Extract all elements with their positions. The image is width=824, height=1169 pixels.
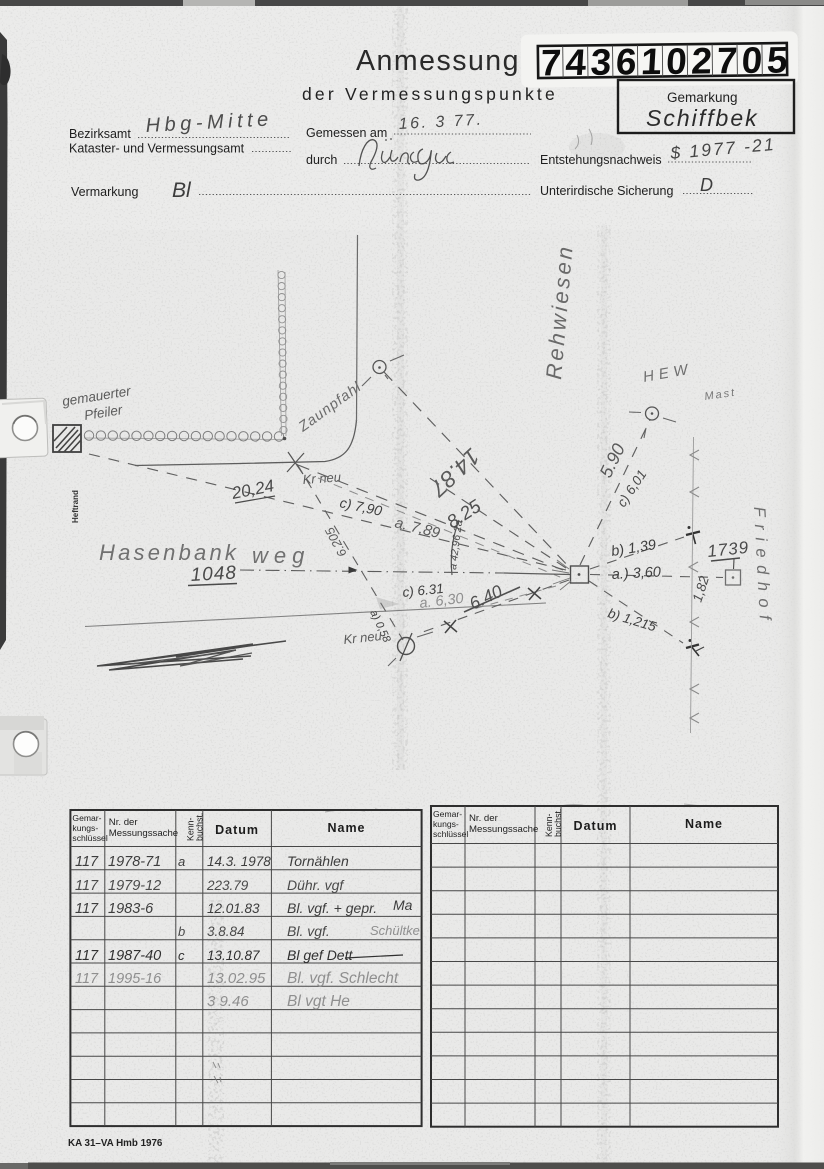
svg-text:schlüssel: schlüssel: [72, 833, 107, 843]
svg-text:117: 117: [75, 878, 99, 894]
svg-text:Ma: Ma: [393, 897, 413, 913]
svg-text:der Vermessungspunkte: der Vermessungspunkte: [302, 84, 558, 104]
svg-text:1978-71: 1978-71: [108, 854, 161, 870]
svg-text:b: b: [178, 924, 185, 939]
svg-text:1048: 1048: [190, 563, 237, 586]
svg-text:a.) 3,60: a.) 3,60: [611, 564, 661, 583]
svg-text:7436102705: 7436102705: [539, 38, 793, 83]
svg-text:Unterirdische Sicherung: Unterirdische Sicherung: [540, 184, 673, 198]
svg-text:3 9.46: 3 9.46: [207, 993, 249, 1010]
svg-text:schlüssel: schlüssel: [433, 829, 468, 839]
svg-text:Schültke: Schültke: [370, 923, 420, 938]
svg-text:117: 117: [75, 948, 99, 964]
svg-text:117: 117: [75, 854, 99, 870]
svg-text:Bl. vgf.: Bl. vgf.: [287, 923, 330, 939]
svg-text:Hasenbank: Hasenbank: [99, 540, 239, 565]
svg-text:a: a: [178, 854, 185, 869]
svg-text:Bezirksamt: Bezirksamt: [69, 127, 131, 141]
svg-text:Datum: Datum: [215, 823, 259, 837]
svg-text:14.3. 1978: 14.3. 1978: [207, 854, 271, 869]
svg-text:Kataster- und Vermessungsamt: Kataster- und Vermessungsamt: [69, 142, 245, 156]
svg-text:c: c: [178, 948, 185, 963]
svg-text:Kr neu: Kr neu: [302, 469, 341, 487]
svg-text:Messungssache: Messungssache: [469, 824, 538, 835]
svg-text:D: D: [700, 175, 713, 195]
svg-text:Gemessen am: Gemessen am: [306, 126, 387, 140]
svg-text:Vermarkung: Vermarkung: [71, 185, 138, 199]
svg-text:Anmessung: Anmessung: [356, 45, 520, 77]
svg-text:Bl. vgf. + gepr.: Bl. vgf. + gepr.: [287, 900, 377, 916]
svg-text:Schiffbek: Schiffbek: [646, 105, 759, 131]
svg-text:durch: durch: [306, 153, 337, 167]
svg-text:Nr. der: Nr. der: [469, 813, 499, 824]
svg-text:Heftrand: Heftrand: [71, 490, 80, 523]
svg-text:buchst.: buchst.: [194, 813, 204, 841]
svg-text:Nr. der: Nr. der: [109, 817, 139, 828]
svg-text:Name: Name: [685, 817, 723, 831]
svg-text:buchst.: buchst.: [553, 809, 563, 837]
svg-text:Tornählen: Tornählen: [287, 853, 349, 869]
svg-text:13.02.95: 13.02.95: [207, 970, 266, 987]
svg-text:Dühr. vgf: Dühr. vgf: [287, 877, 345, 893]
svg-text:223.79: 223.79: [206, 878, 249, 893]
svg-text:13.10.87: 13.10.87: [207, 948, 260, 963]
svg-text:12.01.83: 12.01.83: [207, 901, 260, 916]
svg-text:Datum: Datum: [574, 819, 618, 833]
svg-text:117: 117: [75, 971, 99, 987]
svg-text:Bl gef Dett: Bl gef Dett: [287, 947, 353, 963]
svg-text:Bl: Bl: [172, 179, 192, 202]
svg-text:3.8.84: 3.8.84: [207, 924, 245, 939]
svg-text:Name: Name: [327, 821, 365, 835]
svg-text:Gemarkung: Gemarkung: [667, 90, 738, 105]
svg-text:Messungssache: Messungssache: [109, 828, 178, 839]
svg-text:1979-12: 1979-12: [108, 878, 161, 894]
svg-text:weg: weg: [252, 543, 310, 568]
svg-text:117: 117: [75, 901, 99, 917]
svg-text:KA 31–VA Hmb 1976: KA 31–VA Hmb 1976: [68, 1138, 163, 1149]
svg-text:1983-6: 1983-6: [108, 901, 154, 917]
svg-text:1995-16: 1995-16: [108, 971, 162, 987]
svg-text:kungs-: kungs-: [72, 823, 98, 833]
svg-text:kungs-: kungs-: [433, 819, 459, 829]
svg-text:Bl vgt He: Bl vgt He: [287, 993, 350, 1010]
svg-text:Gemar-: Gemar-: [72, 813, 101, 823]
svg-text:Bl. vgf. Schlecht: Bl. vgf. Schlecht: [287, 970, 399, 987]
svg-text:1987-40: 1987-40: [108, 948, 161, 964]
svg-text:Gemar-: Gemar-: [433, 809, 462, 819]
